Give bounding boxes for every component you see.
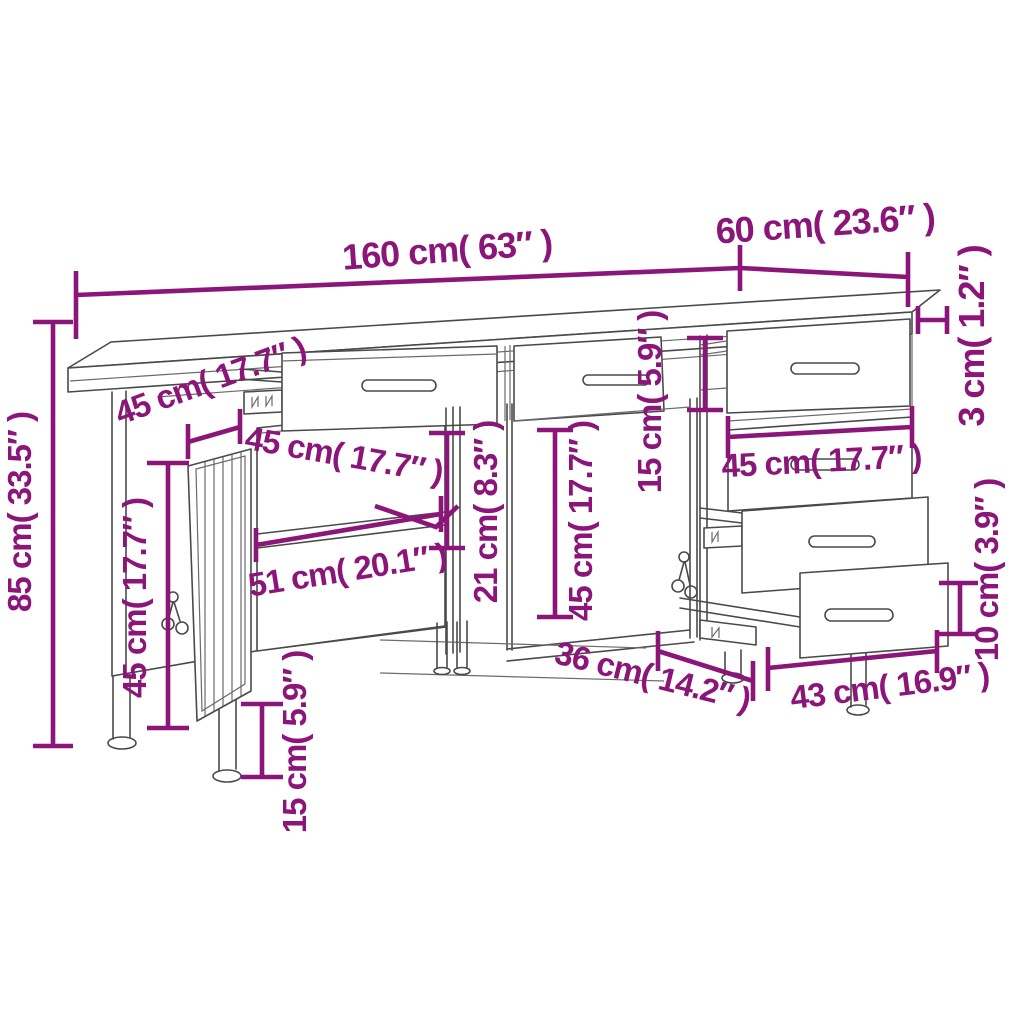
dim-total-width-label: 160 cm( 63″ )	[341, 221, 554, 277]
dim-total-height: 85 cm( 33.5″ )	[1, 322, 73, 746]
drawer-4-bracket	[700, 620, 756, 645]
left-drawer-front	[282, 346, 497, 431]
dim-total-depth-label: 60 cm( 23.6″ )	[714, 195, 936, 251]
middle-foot-right	[454, 668, 470, 675]
cabinet-key-icon	[672, 552, 697, 598]
right-top-drawer-front	[727, 319, 910, 413]
dim-worktop-thickness-label: 3 cm( 1.2″ )	[951, 245, 992, 426]
dim-leg-height: 15 cm( 5.9″ )	[241, 651, 313, 834]
dim-shelf-opening-height-label: 21 cm( 8.3″ )	[467, 421, 504, 604]
drawer-4-front	[800, 563, 948, 658]
door-side-foot	[213, 770, 241, 782]
front-left-foot	[108, 737, 136, 749]
dim-door-height-label: 45 cm( 17.7″ )	[116, 498, 153, 698]
dim-bottom-drawer-front-height-label: 10 cm( 3.9″ )	[968, 479, 1005, 662]
dim-bottom-drawer-front-height: 10 cm( 3.9″ )	[939, 479, 1005, 662]
cabinet-door-open	[162, 449, 251, 721]
dim-total-height-label: 85 cm( 33.5″ )	[1, 412, 38, 612]
drawer-3-bracket	[704, 526, 742, 548]
dim-leg-height-label: 15 cm( 5.9″ )	[276, 651, 313, 834]
dim-total-depth: 60 cm( 23.6″ )	[714, 195, 936, 307]
dim-middle-opening-height: 45 cm( 17.7″ )	[537, 421, 599, 621]
dim-drawer-front-height-label: 15 cm( 5.9″ )	[631, 311, 668, 494]
middle-foot-left	[434, 668, 450, 675]
dim-bottom-compartment-depth: 36 cm( 14.2″ )	[551, 631, 754, 718]
dim-worktop-thickness: 3 cm( 1.2″ )	[918, 245, 992, 426]
workbench-drawing-canvas: 160 cm( 63″ ) 60 cm( 23.6″ ) 3 cm( 1.2″ …	[0, 0, 1024, 1024]
dim-middle-opening-height-label: 45 cm( 17.7″ )	[562, 421, 599, 621]
left-drawer-slide-bracket	[244, 390, 282, 414]
dimension-diagram: 160 cm( 63″ ) 60 cm( 23.6″ ) 3 cm( 1.2″ …	[0, 0, 1024, 1024]
drawer-4-rails	[680, 598, 800, 627]
